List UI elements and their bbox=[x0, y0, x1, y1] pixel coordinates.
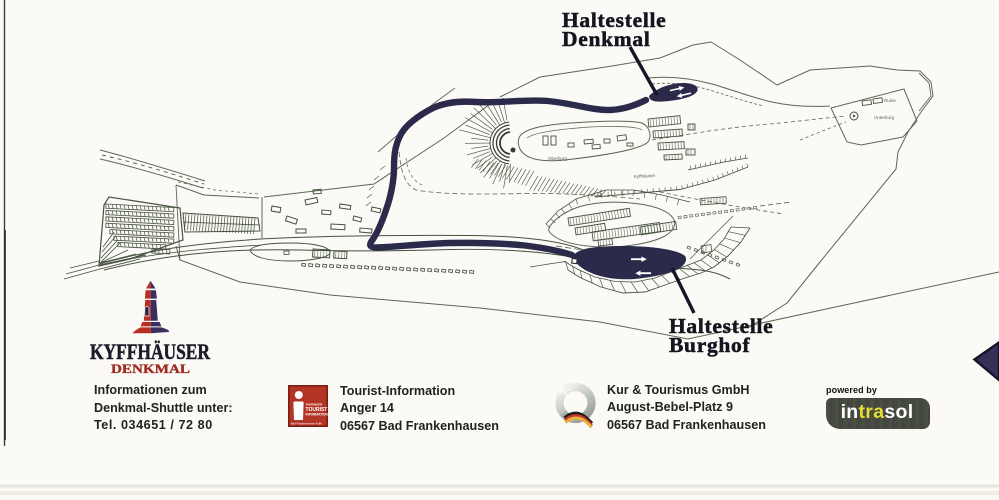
svg-text:Bad Frankenhausen Kyffh.: Bad Frankenhausen Kyffh. bbox=[291, 421, 323, 425]
svg-text:Ruine: Ruine bbox=[884, 98, 896, 103]
svg-text:Oberburg: Oberburg bbox=[548, 156, 568, 161]
svg-text:THÜRINGER: THÜRINGER bbox=[306, 402, 323, 407]
svg-text:Kyffhäuser: Kyffhäuser bbox=[634, 173, 656, 179]
svg-text:Unterburg: Unterburg bbox=[874, 115, 895, 120]
svg-text:DENKMAL: DENKMAL bbox=[111, 361, 190, 376]
svg-text:INFORMATION: INFORMATION bbox=[306, 413, 329, 417]
